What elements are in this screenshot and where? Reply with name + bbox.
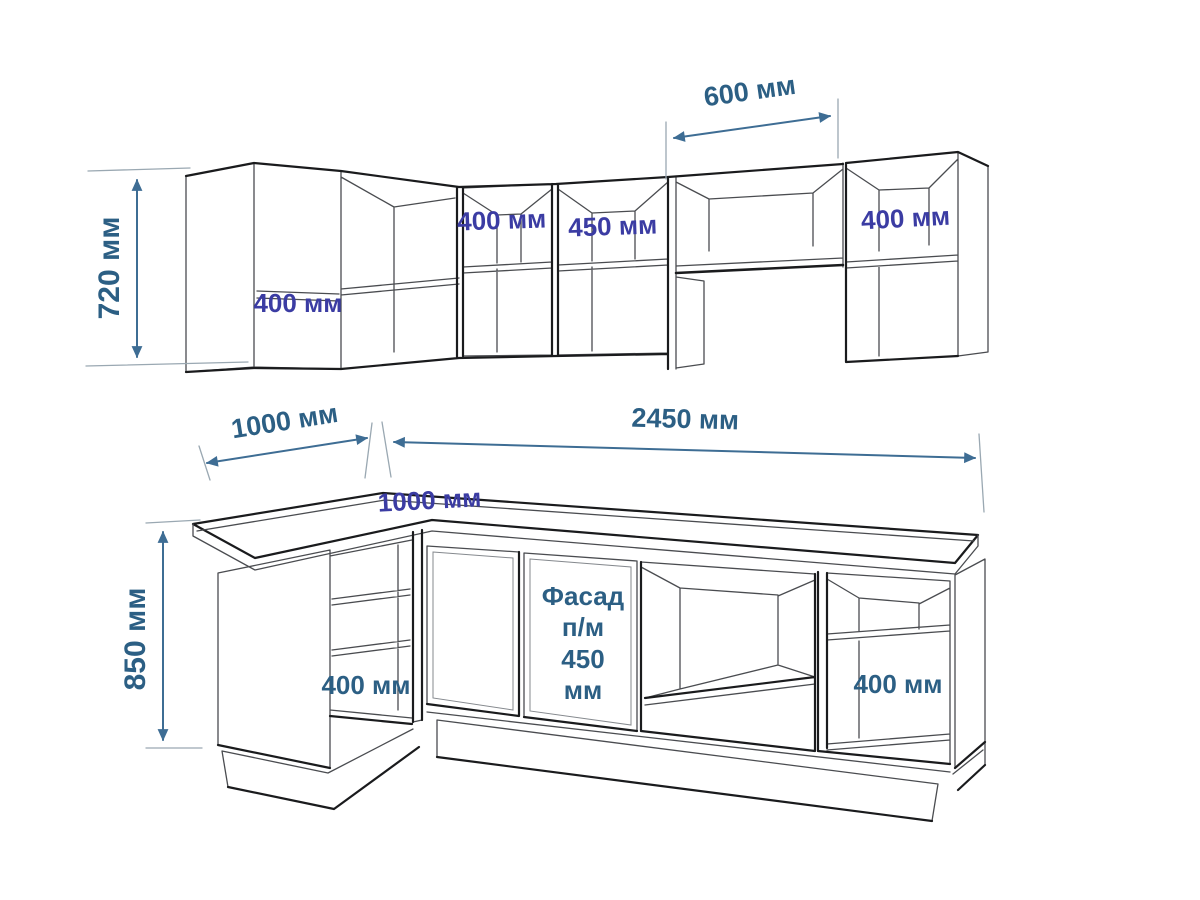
dim-label-850: 850 мм xyxy=(119,588,152,691)
countertop-edges xyxy=(193,493,978,563)
upper-cabinets-row xyxy=(186,152,988,372)
facade-label-line3: 450 xyxy=(561,644,604,674)
upper-corner-cabinet-label: 400 мм xyxy=(253,288,342,318)
drawing-canvas: 720 мм 600 мм 400 мм 400 мм 450 мм 400 м… xyxy=(0,0,1200,900)
dim-arrow-2450 xyxy=(394,442,975,458)
dim-label-2450: 2450 мм xyxy=(631,403,739,436)
extension-ticks xyxy=(86,99,984,748)
wall-cabinets-lines xyxy=(186,152,988,372)
upper-cabinet2-label: 450 мм xyxy=(568,209,658,242)
hood-cabinet-bottom-edge xyxy=(676,265,843,273)
dim-label-1000-left: 1000 мм xyxy=(229,398,340,444)
upper-cabinet1-label: 400 мм xyxy=(457,203,547,236)
countertop xyxy=(193,493,978,574)
kitchen-dimension-drawing: 720 мм 600 мм 400 мм 400 мм 450 мм 400 м… xyxy=(0,0,1200,900)
dim-label-720: 720 мм xyxy=(93,217,126,320)
facade-label-line2: п/м xyxy=(562,612,604,642)
facade-label-line4: мм xyxy=(564,675,602,705)
dim-arrow-1000 xyxy=(207,438,367,463)
dim-arrow-600 xyxy=(674,116,830,138)
upper-right-cabinet-label: 400 мм xyxy=(860,201,951,236)
dim-label-600: 600 мм xyxy=(702,70,798,113)
dim-label-1000-depth: 1000 мм xyxy=(377,482,482,517)
base-right-shelf-label: 400 мм xyxy=(853,669,942,699)
dimension-lines xyxy=(86,99,984,748)
wall-cabinets-outline xyxy=(186,152,988,372)
base-corner-shelf-label: 400 мм xyxy=(321,670,410,700)
facade-label-line1: Фасад xyxy=(542,581,625,611)
